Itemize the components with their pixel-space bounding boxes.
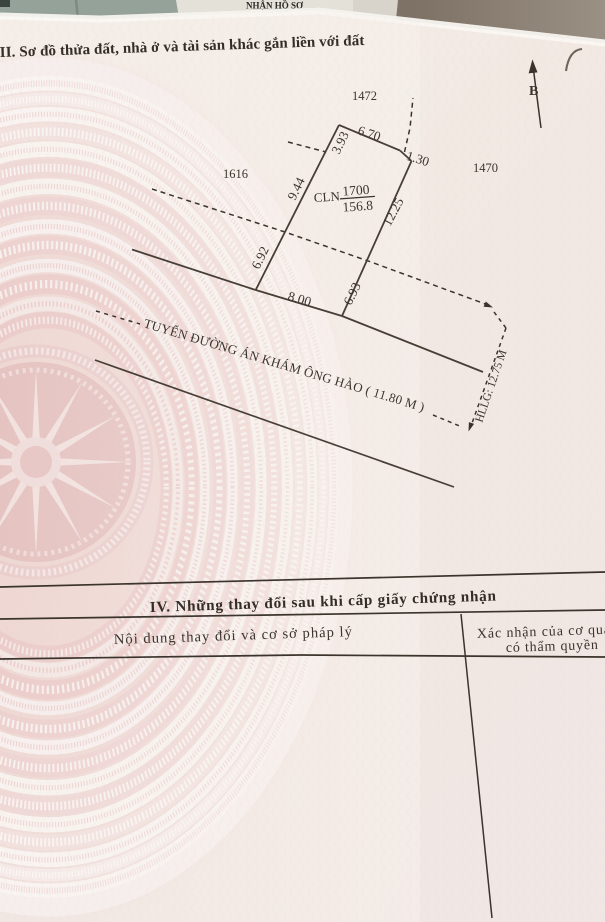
svg-text:B: B [529,84,538,99]
svg-text:1470: 1470 [473,161,498,175]
svg-text:156.8: 156.8 [342,198,374,215]
svg-text:1700: 1700 [342,182,370,199]
svg-text:1616: 1616 [223,167,248,181]
svg-text:CLN: CLN [313,188,341,205]
svg-text:1472: 1472 [352,89,377,103]
svg-text:có thẩm quyền: có thẩm quyền [506,638,599,656]
